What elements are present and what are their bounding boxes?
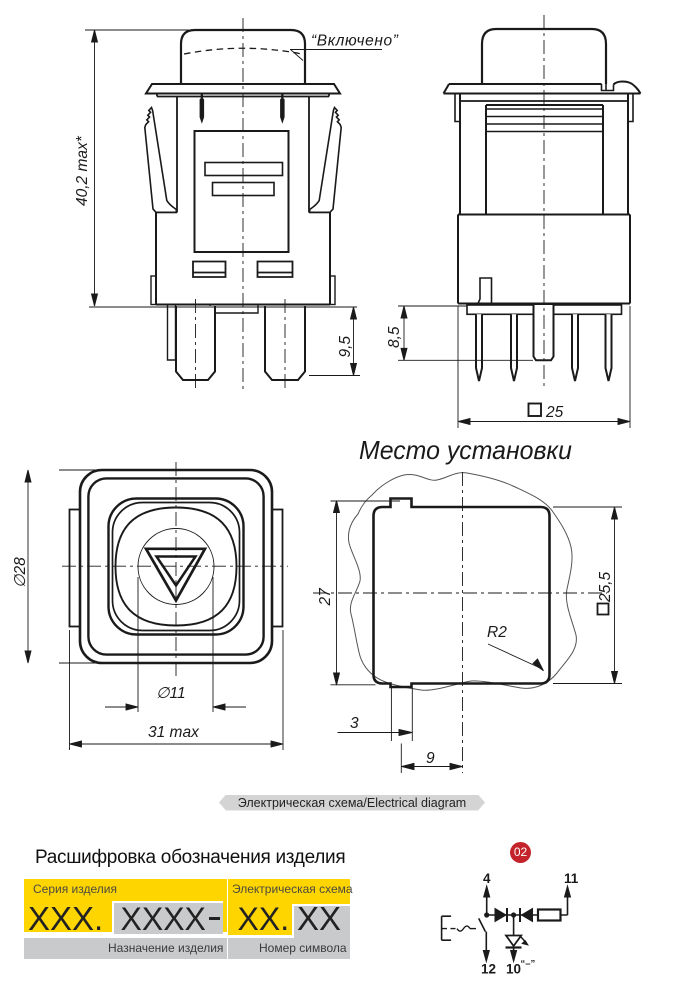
svg-text:3: 3 <box>350 715 359 732</box>
svg-text:8,5: 8,5 <box>386 326 403 348</box>
svg-text:4: 4 <box>483 871 491 886</box>
svg-text:31 max: 31 max <box>148 724 200 741</box>
svg-text:40,2 max*: 40,2 max* <box>74 135 91 206</box>
svg-text:∅11: ∅11 <box>156 685 186 702</box>
svg-text:“Включено”: “Включено” <box>311 33 399 50</box>
svg-text:Место установки: Место установки <box>359 435 572 465</box>
svg-text:9: 9 <box>426 750 435 767</box>
svg-text:27: 27 <box>317 587 334 607</box>
svg-text:25: 25 <box>545 404 564 421</box>
svg-text:10: 10 <box>506 962 521 977</box>
svg-text:25,5: 25,5 <box>597 571 614 603</box>
svg-text:9,5: 9,5 <box>337 336 354 358</box>
svg-text:“–”: “–” <box>521 959 536 970</box>
svg-text:∅28: ∅28 <box>12 557 29 588</box>
svg-text:11: 11 <box>564 871 579 886</box>
svg-text:R2: R2 <box>487 624 507 641</box>
svg-text:12: 12 <box>481 962 496 977</box>
